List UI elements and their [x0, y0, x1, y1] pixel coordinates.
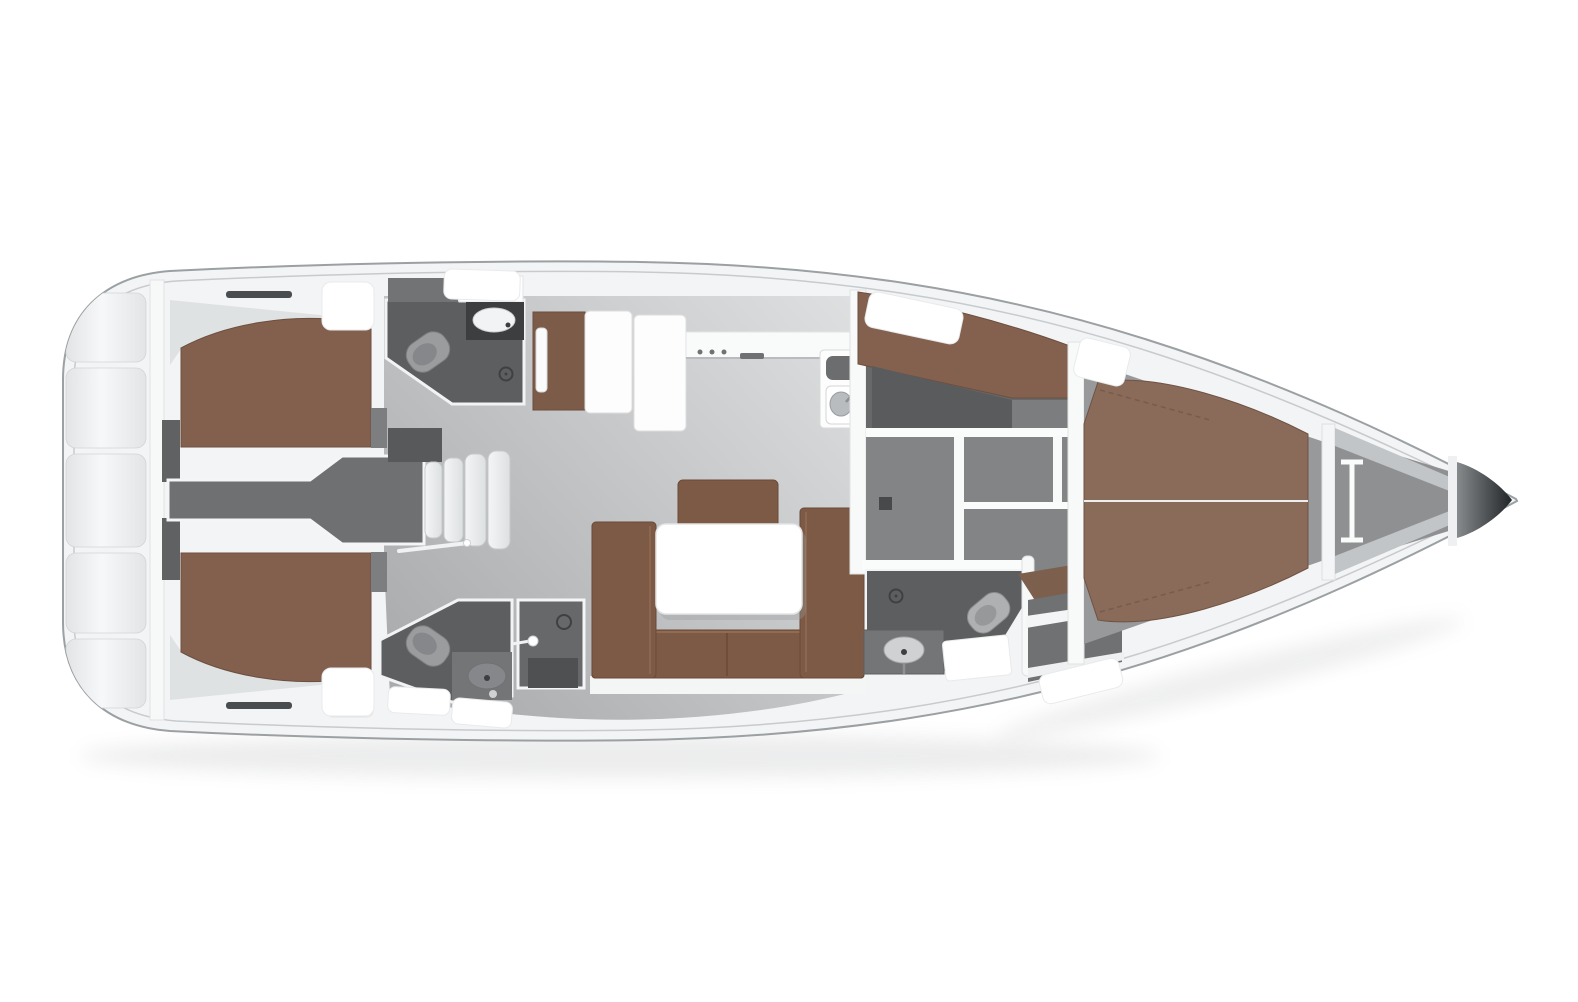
swim-platform-panel	[66, 553, 146, 633]
door-handle-mark	[879, 497, 892, 510]
shower-drain-center	[895, 595, 898, 598]
sofa-left-arm	[592, 522, 656, 678]
forward-head-top-wall	[862, 560, 1030, 570]
corridor	[866, 428, 1070, 572]
stove-knob	[698, 350, 703, 355]
aft-cabin-port-berth	[181, 318, 371, 447]
sink-drain-dot	[901, 649, 907, 655]
aft-cabin-port-doorway	[371, 408, 387, 448]
sink-drain-dot	[484, 675, 490, 681]
owner-cabin-bulkhead	[1068, 342, 1084, 664]
shower-drain-center	[505, 373, 508, 376]
forepeak-bulkhead	[1322, 424, 1335, 580]
cockpit-locker-port	[322, 282, 374, 330]
deck-vent-starboard	[226, 702, 292, 709]
salon-stool	[678, 480, 778, 528]
corridor-partition-wall	[954, 436, 964, 572]
sink-faucet-knob	[489, 690, 497, 698]
bow-tip	[1457, 462, 1512, 538]
companionway-step	[444, 458, 463, 542]
owner-cabin-door-wall	[964, 502, 1070, 509]
swim-platform-panel	[66, 639, 146, 708]
aft-cabin-starboard-berth	[181, 553, 371, 682]
door-frame-white	[536, 328, 547, 392]
stove-knob	[710, 350, 715, 355]
yacht-floor-plan	[0, 0, 1578, 1002]
shower-tray	[528, 658, 578, 688]
aft-head-port-sink	[473, 308, 515, 332]
shower-stall	[512, 600, 584, 688]
sofa-base	[590, 676, 866, 694]
oven-handle	[740, 353, 764, 359]
forward-head	[862, 556, 1034, 681]
swim-platform-panel	[66, 454, 146, 547]
corridor-top-wall	[866, 428, 1070, 437]
cockpit-locker-starboard	[322, 668, 374, 716]
deck-hatch	[443, 269, 520, 302]
aft-cabin-starboard-doorway	[371, 552, 387, 592]
transom-wall	[150, 280, 164, 720]
galley-fridge-unit	[585, 311, 632, 413]
corridor-locker-wall	[1053, 436, 1062, 506]
stern-locker-dark	[162, 518, 180, 580]
stern-locker-dark	[162, 420, 180, 482]
companionway-step	[488, 451, 510, 549]
salon-table	[656, 524, 802, 614]
companionway-steps	[425, 451, 510, 549]
aft-head-port-faucet	[506, 323, 511, 328]
swim-platform-panel	[66, 368, 146, 448]
shower-handle	[528, 636, 538, 646]
hull-band-panel	[451, 697, 513, 728]
companionway-locker	[388, 428, 442, 462]
galley-cabinet-unit	[634, 315, 686, 431]
head-door-knob	[464, 540, 471, 547]
forward-head-door	[942, 635, 1012, 682]
sink-basin	[830, 392, 852, 416]
swim-platform	[66, 293, 146, 708]
deck-vent-port	[226, 291, 292, 298]
companionway-door	[533, 312, 585, 410]
bow-rib-wall	[1448, 456, 1457, 546]
companionway-step	[425, 462, 442, 538]
stove-knob	[722, 350, 727, 355]
swim-platform-panel	[66, 293, 146, 362]
yacht-floor-plan-figure	[0, 0, 1578, 1002]
hull-band-panel	[387, 686, 450, 715]
companionway-step	[465, 454, 486, 546]
